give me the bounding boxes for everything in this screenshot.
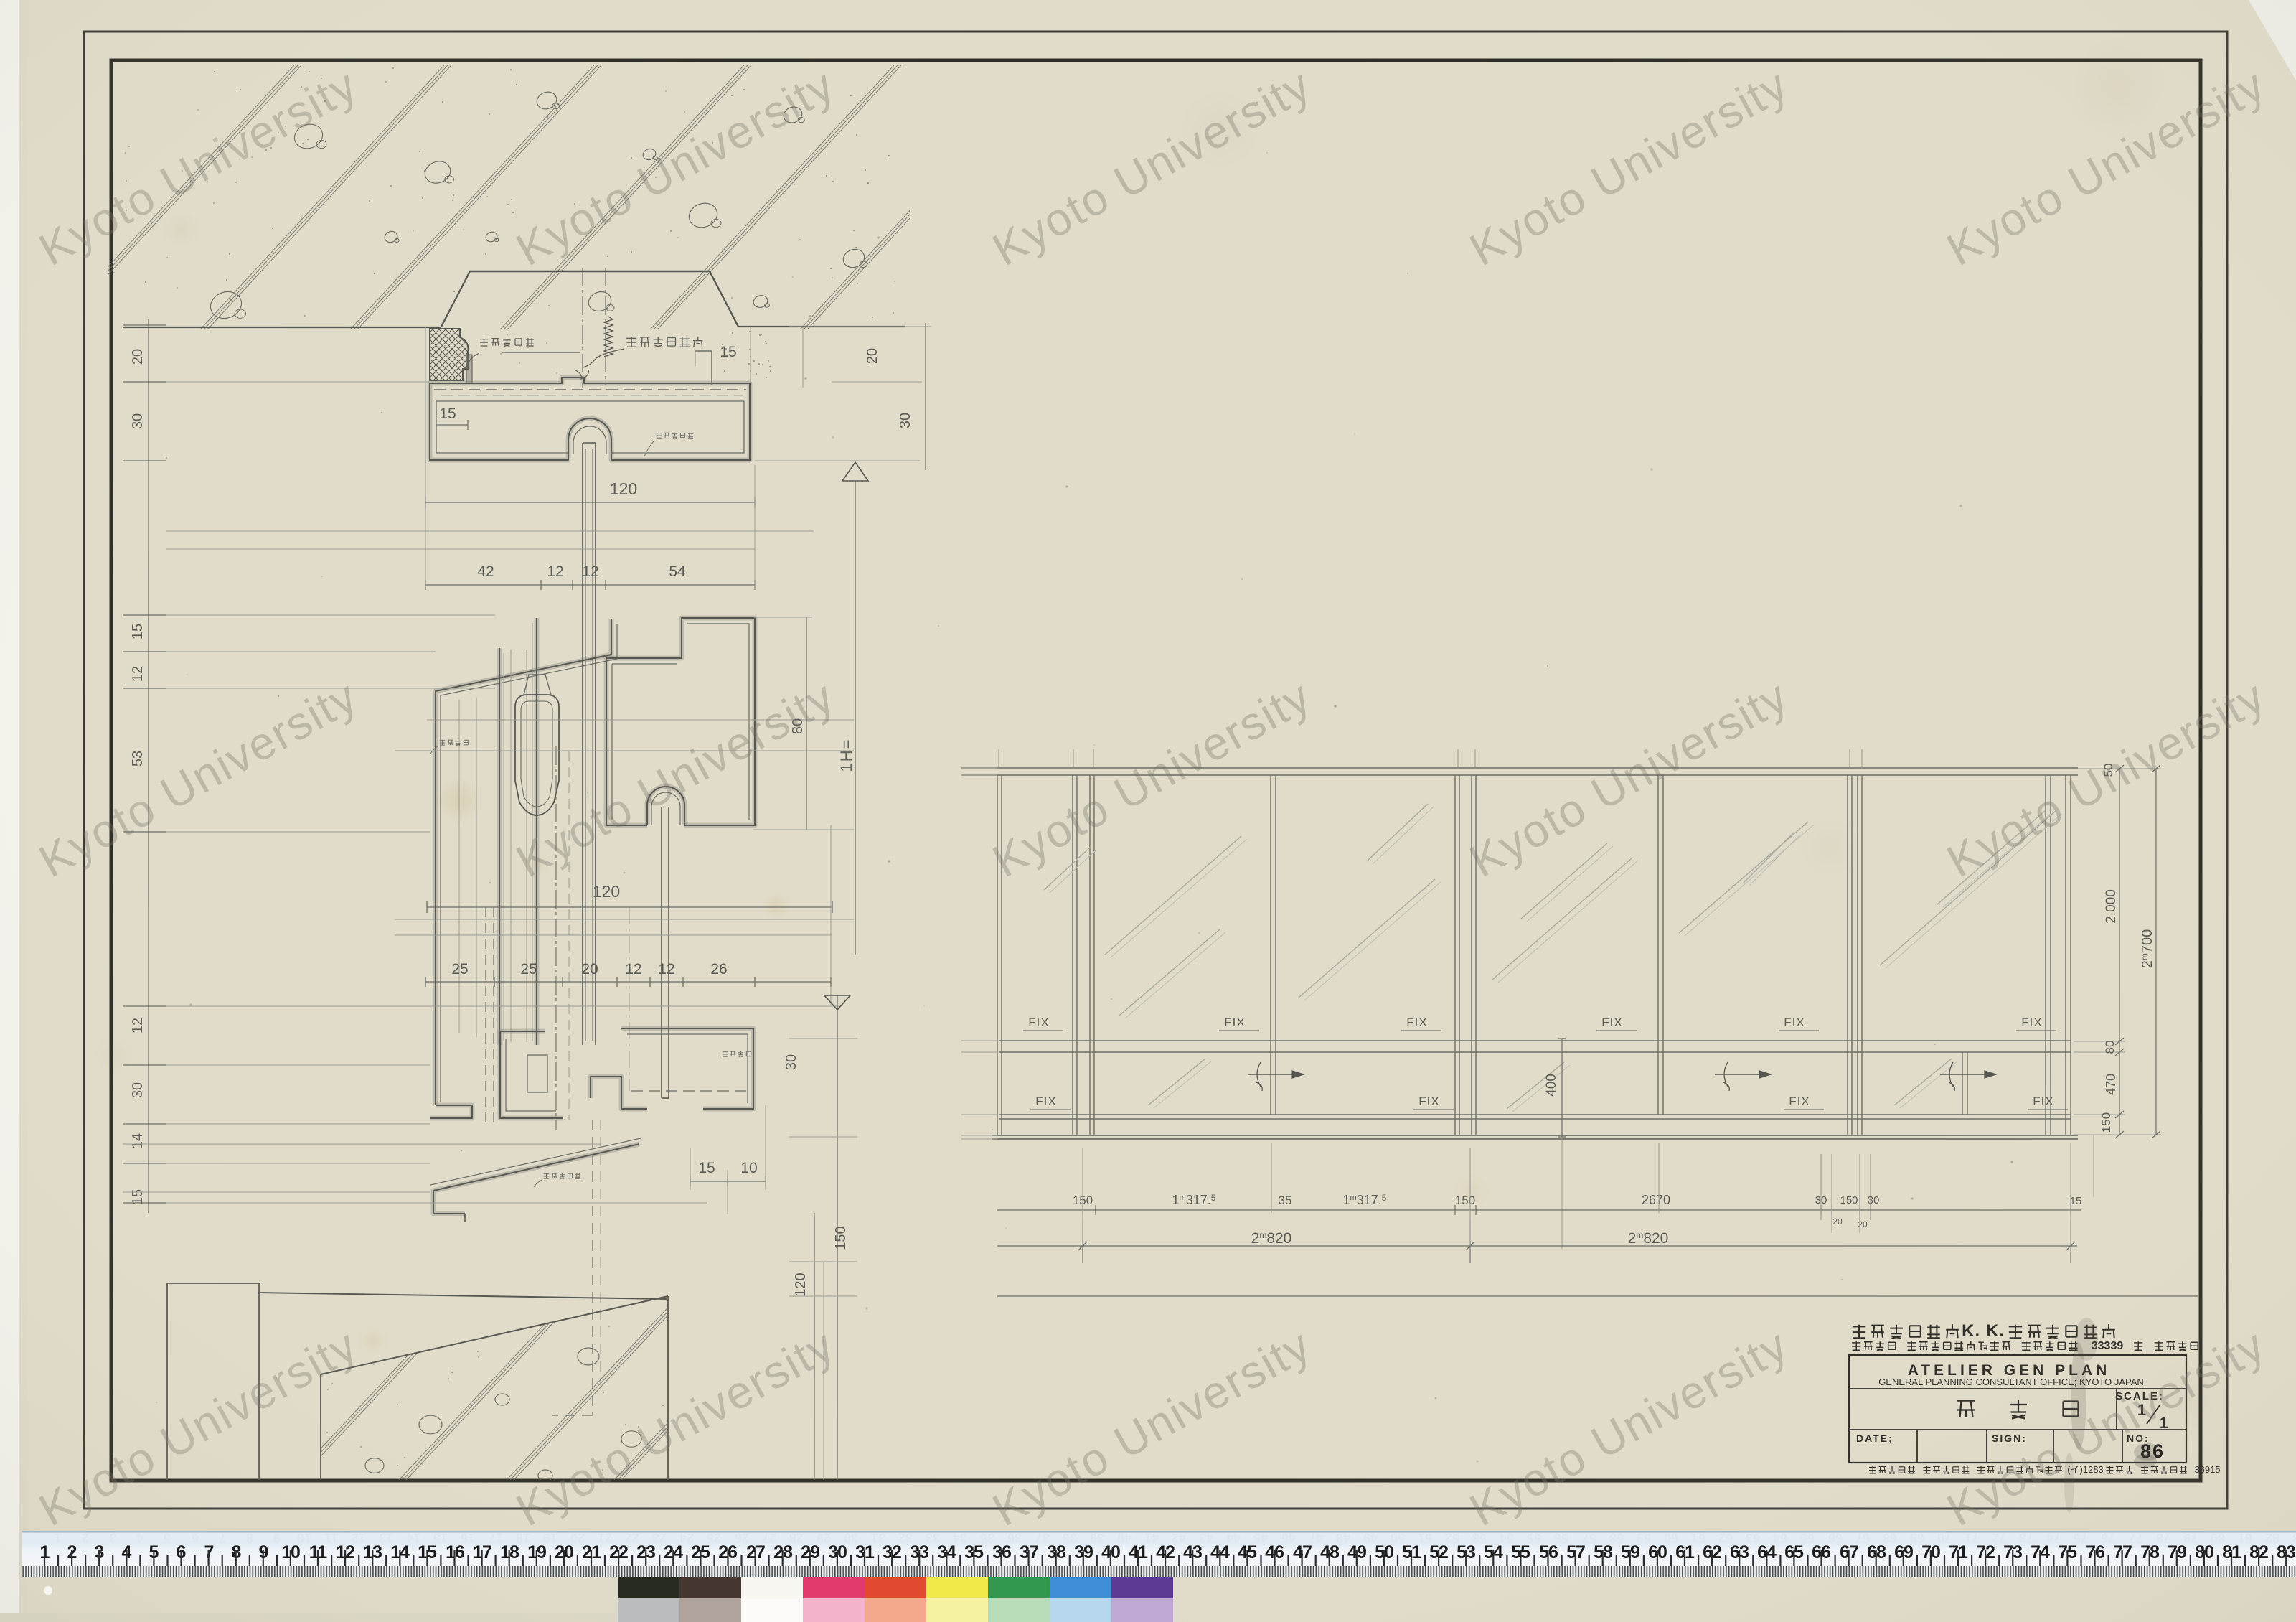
svg-text:4: 4 — [136, 1531, 143, 1545]
svg-text:3: 3 — [109, 1531, 116, 1545]
svg-text:7: 7 — [219, 1531, 226, 1545]
svg-text:8: 8 — [246, 1531, 253, 1545]
svg-text:9: 9 — [273, 1531, 281, 1545]
svg-text:6: 6 — [192, 1531, 199, 1545]
svg-text:1: 1 — [55, 1531, 62, 1545]
svg-text:2: 2 — [82, 1531, 89, 1545]
svg-text:5: 5 — [164, 1531, 171, 1545]
